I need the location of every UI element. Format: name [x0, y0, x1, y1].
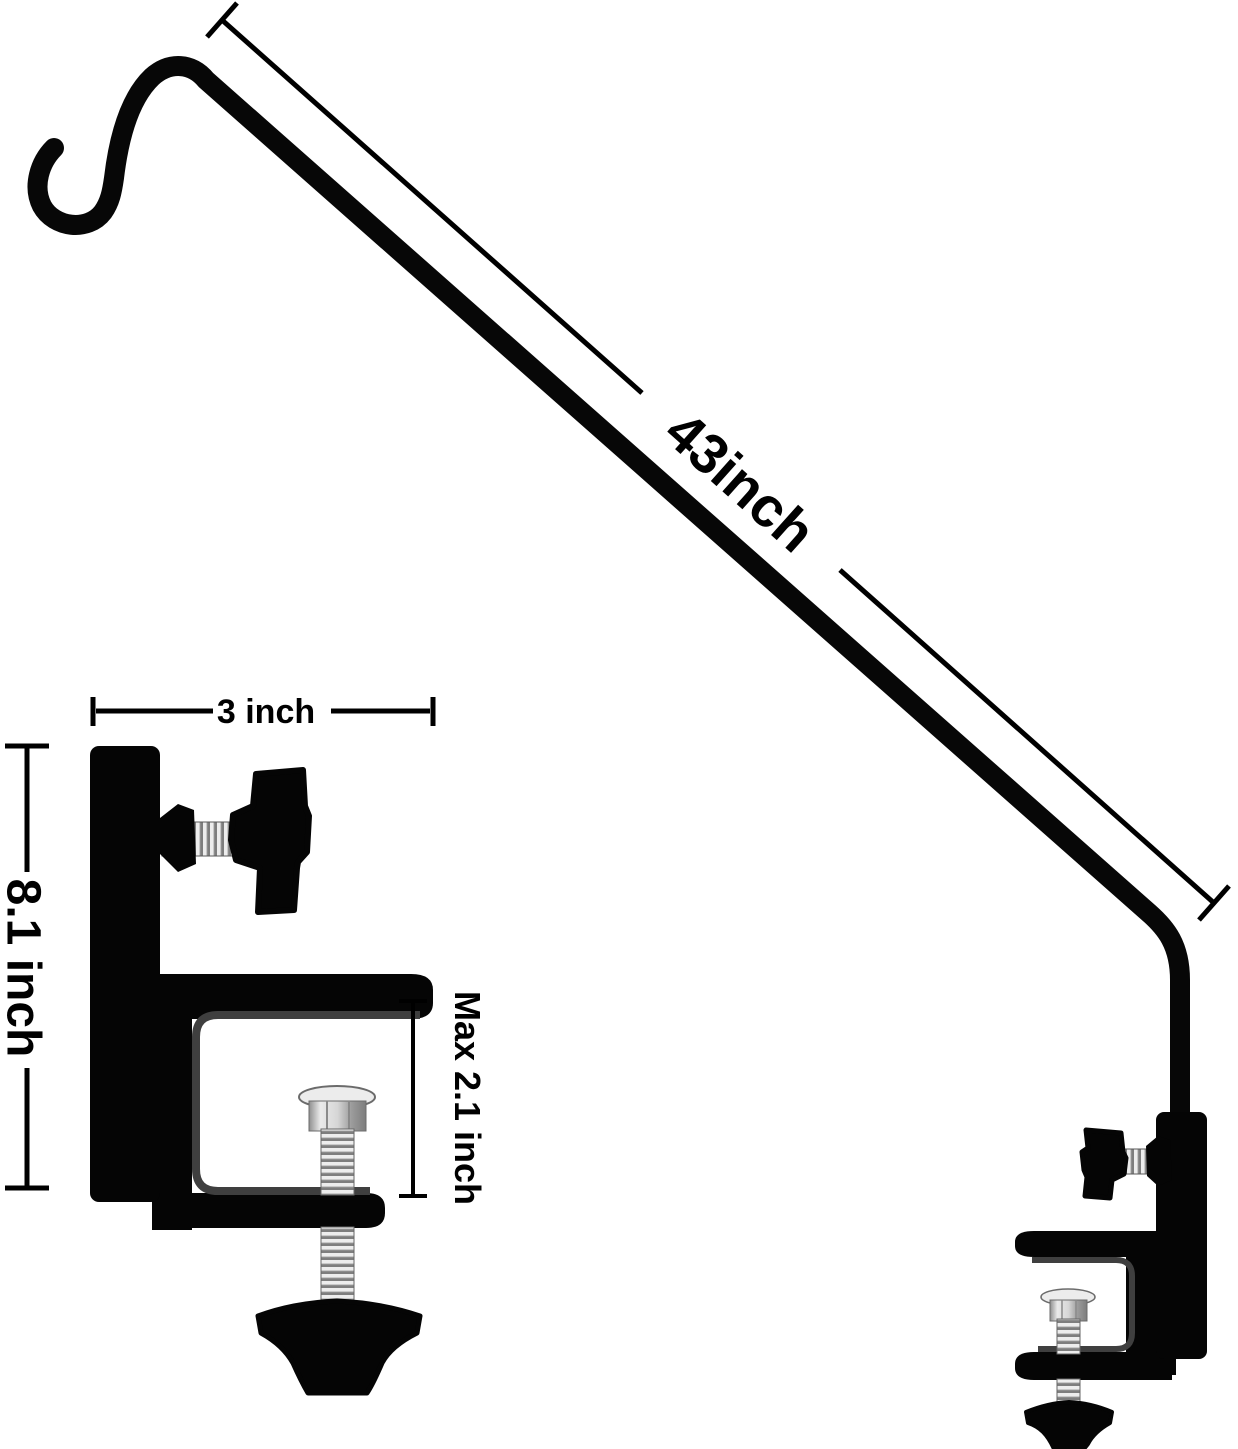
- dim-pole-length: 43inch: [207, 3, 1229, 920]
- clamp-bottom-arm: [1015, 1352, 1172, 1380]
- max-opening-label: Max 2.1 inch: [447, 991, 488, 1205]
- dim-clamp-height: 8.1 inch: [0, 746, 50, 1188]
- knob-bolt-collar: [160, 804, 196, 872]
- diagram-canvas: 43inch 3 inch: [0, 0, 1238, 1449]
- dim-clamp-width: 3 inch: [93, 693, 433, 731]
- screw-threads-lower: [321, 1227, 354, 1303]
- screw-hex-head: [1050, 1300, 1087, 1321]
- pole-socket-tube: [90, 746, 160, 1202]
- product-dimension-diagram: 43inch 3 inch: [0, 0, 1238, 1449]
- screw-threads-upper: [1057, 1319, 1080, 1354]
- mounted-clamp-view: [1015, 1112, 1207, 1449]
- dim-line-segment: [840, 570, 1214, 903]
- dim-line-segment: [222, 20, 642, 393]
- clamp-bottom-arm: [152, 1193, 385, 1228]
- screw-threads-upper: [321, 1129, 354, 1195]
- pole-shape: [38, 66, 1180, 1125]
- dim-max-opening: Max 2.1 inch: [399, 991, 488, 1205]
- screw-wing-knob: [258, 1301, 420, 1393]
- clamp-top-arm: [1015, 1231, 1172, 1257]
- clamp-height-label: 8.1 inch: [0, 879, 50, 1058]
- clamp-detail-view: [90, 746, 433, 1393]
- pole-with-hook: [38, 66, 1180, 1125]
- clamp-width-label: 3 inch: [217, 693, 315, 731]
- screw-hex-head: [309, 1101, 366, 1131]
- screw-wing-knob: [1026, 1402, 1112, 1449]
- tightening-knob: [231, 770, 309, 912]
- tightening-knob: [1082, 1130, 1126, 1198]
- knob-bolt-collar: [1146, 1136, 1172, 1186]
